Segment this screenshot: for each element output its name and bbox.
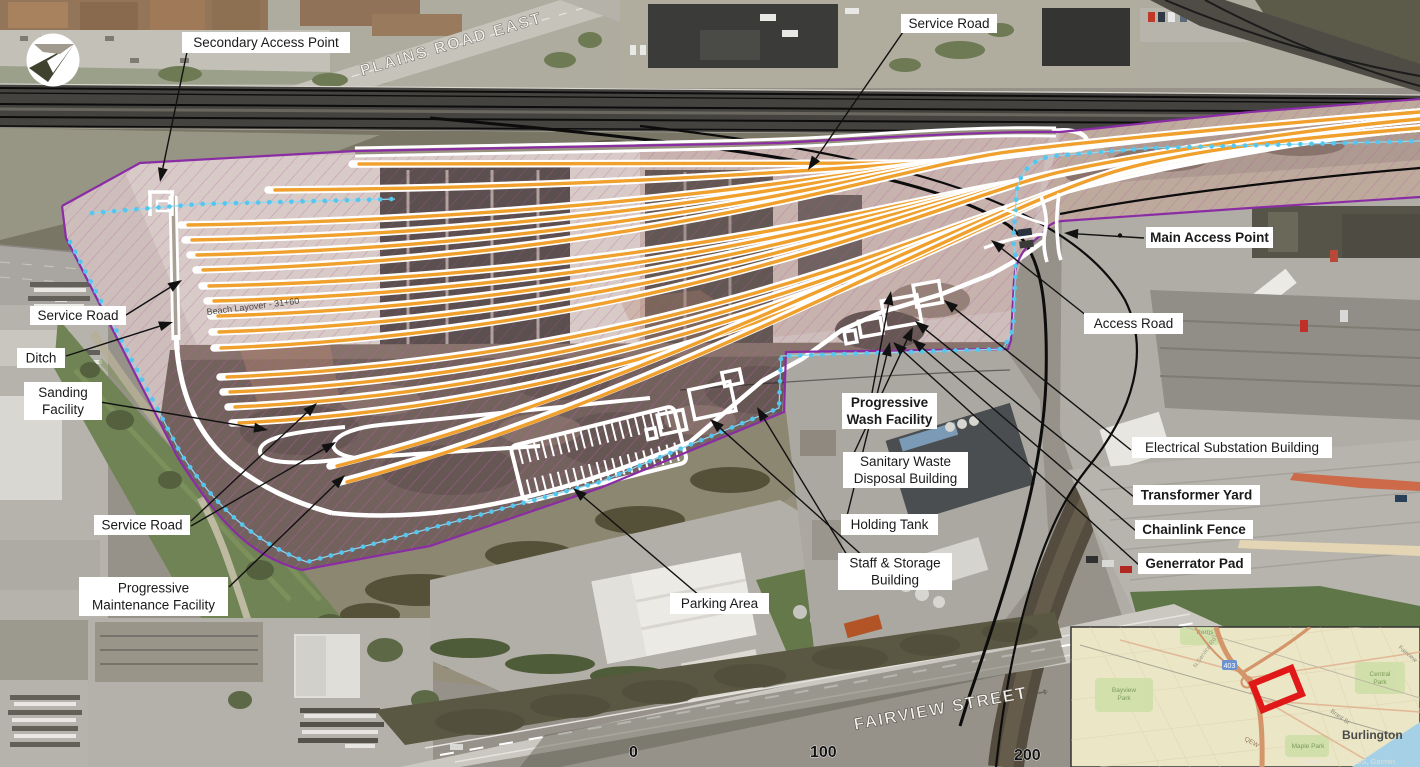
svg-text:Generrator Pad: Generrator Pad bbox=[1145, 556, 1243, 571]
svg-text:Progressive: Progressive bbox=[118, 581, 189, 596]
svg-text:Staff & Storage: Staff & Storage bbox=[849, 556, 940, 571]
svg-text:200: 200 bbox=[1014, 747, 1041, 764]
svg-text:Holding Tank: Holding Tank bbox=[851, 517, 929, 532]
svg-text:Burlington: Burlington bbox=[1342, 728, 1403, 742]
svg-text:Chainlink Fence: Chainlink Fence bbox=[1142, 522, 1246, 537]
svg-text:Central: Central bbox=[1370, 671, 1392, 678]
svg-text:Service Road: Service Road bbox=[101, 518, 182, 533]
svg-text:Access Road: Access Road bbox=[1094, 316, 1174, 331]
svg-text:Sanding: Sanding bbox=[38, 385, 88, 400]
svg-text:Building: Building bbox=[871, 573, 919, 588]
svg-text:100: 100 bbox=[810, 744, 837, 761]
svg-text:Disposal Building: Disposal Building bbox=[854, 471, 958, 486]
svg-text:Park: Park bbox=[1117, 695, 1131, 702]
svg-text:Source: Esri, USGS, Garmin: Source: Esri, USGS, Garmin bbox=[1300, 757, 1395, 766]
svg-text:0: 0 bbox=[629, 744, 638, 761]
svg-text:Parking Area: Parking Area bbox=[681, 596, 759, 611]
svg-text:Service Road: Service Road bbox=[908, 16, 989, 31]
svg-text:Electrical Substation Building: Electrical Substation Building bbox=[1145, 440, 1319, 455]
svg-text:Main Access Point: Main Access Point bbox=[1150, 230, 1269, 245]
svg-text:Sanitary Waste: Sanitary Waste bbox=[860, 454, 951, 469]
svg-text:Progressive: Progressive bbox=[851, 395, 929, 410]
svg-text:Bayview: Bayview bbox=[1112, 687, 1137, 694]
svg-text:Ditch: Ditch bbox=[26, 351, 57, 366]
svg-text:Transformer Yard: Transformer Yard bbox=[1141, 488, 1253, 503]
svg-text:Maple Park: Maple Park bbox=[1292, 743, 1326, 750]
svg-text:Maintenance Facility: Maintenance Facility bbox=[92, 598, 215, 613]
svg-text:Wash Facility: Wash Facility bbox=[847, 412, 933, 427]
svg-text:Secondary Access Point: Secondary Access Point bbox=[193, 35, 339, 50]
svg-text:Facility: Facility bbox=[42, 402, 84, 417]
svg-text:Service Road: Service Road bbox=[37, 308, 118, 323]
svg-text:403: 403 bbox=[1224, 663, 1236, 670]
